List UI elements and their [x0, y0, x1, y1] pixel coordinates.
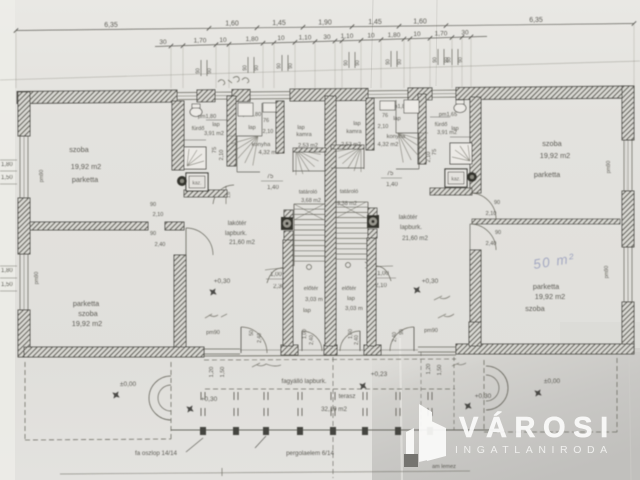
svg-text:lap: lap: [393, 116, 400, 122]
svg-text:pm90: pm90: [39, 170, 45, 183]
svg-text:19,92 m2: 19,92 m2: [540, 151, 570, 160]
svg-text:3,68 m2: 3,68 m2: [301, 198, 321, 204]
svg-text:szoba: szoba: [78, 309, 98, 318]
svg-text:75: 75: [267, 174, 274, 180]
svg-text:pm90: pm90: [604, 266, 610, 279]
svg-text:1,10: 1,10: [299, 35, 312, 42]
svg-text:szoba: szoba: [542, 139, 562, 148]
svg-text:1,80: 1,80: [246, 36, 259, 43]
svg-text:1,80: 1,80: [1, 268, 13, 274]
svg-text:parketta: parketta: [534, 170, 561, 179]
svg-text:szoba: szoba: [69, 145, 89, 154]
svg-text:kamra: kamra: [346, 129, 362, 135]
svg-text:fagyálló lapburk.: fagyálló lapburk.: [281, 378, 326, 385]
svg-text:2,10: 2,10: [375, 283, 387, 289]
svg-text:1,10: 1,10: [341, 33, 354, 40]
svg-text:parketta: parketta: [73, 299, 100, 308]
svg-text:1,70: 1,70: [435, 30, 448, 37]
svg-text:fürdő: fürdő: [192, 126, 205, 132]
svg-text:szoba: szoba: [525, 304, 545, 313]
svg-text:90: 90: [447, 57, 453, 63]
svg-text:tatároló: tatároló: [340, 189, 358, 195]
svg-text:lap: lap: [248, 125, 255, 131]
svg-text:lakótér: lakótér: [399, 214, 418, 221]
svg-text:3,91 m2: 3,91 m2: [204, 131, 224, 137]
svg-text:1,90: 1,90: [318, 20, 332, 27]
svg-text:10: 10: [413, 31, 421, 38]
svg-text:90: 90: [288, 63, 294, 69]
svg-text:1,50: 1,50: [1, 282, 13, 288]
svg-text:2,40: 2,40: [354, 335, 360, 345]
svg-text:90: 90: [254, 65, 260, 71]
svg-text:INGATLANIRODA: INGATLANIRODA: [455, 444, 613, 456]
svg-text:lap: lap: [353, 121, 360, 127]
svg-text:2,10: 2,10: [486, 211, 497, 217]
svg-text:parketta: parketta: [72, 175, 99, 184]
svg-text:+0,30: +0,30: [201, 396, 218, 403]
svg-text:75: 75: [212, 147, 218, 153]
svg-text:32,19 m2: 32,19 m2: [321, 406, 347, 413]
svg-text:90: 90: [494, 200, 500, 206]
svg-text:pm90: pm90: [206, 330, 220, 336]
svg-text:4,32 m2: 4,32 m2: [378, 142, 399, 148]
svg-text:90: 90: [433, 57, 439, 63]
svg-text:1,45: 1,45: [368, 19, 382, 26]
svg-text:fa oszlop 14/14: fa oszlop 14/14: [135, 450, 178, 457]
svg-text:21,60 m2: 21,60 m2: [402, 235, 428, 242]
svg-text:2,40: 2,40: [309, 335, 315, 345]
svg-text:terasz: terasz: [339, 393, 356, 400]
svg-text:+0,30: +0,30: [422, 278, 439, 285]
svg-text:előtér: előtér: [304, 286, 319, 292]
svg-text:90: 90: [277, 63, 283, 69]
svg-text:+0,30: +0,30: [475, 393, 492, 400]
svg-text:2,40: 2,40: [155, 242, 166, 248]
svg-text:előtér: előtér: [342, 286, 357, 292]
svg-text:lapburk.: lapburk.: [400, 224, 422, 231]
svg-text:1,40: 1,40: [386, 182, 398, 188]
svg-text:pergolaelem 6/14: pergolaelem 6/14: [286, 450, 334, 457]
svg-text:+0,30: +0,30: [214, 278, 231, 285]
svg-text:30: 30: [159, 39, 167, 46]
svg-text:1,00: 1,00: [270, 272, 282, 278]
svg-text:1,00: 1,00: [377, 271, 389, 277]
svg-text:1,50: 1,50: [1, 175, 13, 181]
svg-text:lap: lap: [297, 125, 304, 131]
svg-text:10: 10: [367, 33, 375, 40]
svg-text:1,80: 1,80: [388, 32, 401, 39]
svg-text:parketta: parketta: [533, 282, 560, 291]
svg-text:1,80: 1,80: [1, 162, 13, 168]
svg-text:lap: lap: [303, 308, 311, 314]
svg-text:1,20: 1,20: [209, 367, 215, 378]
svg-text:lap: lap: [212, 122, 219, 128]
svg-text:pm1,80: pm1,80: [198, 114, 216, 120]
svg-text:6,35: 6,35: [529, 17, 543, 24]
svg-text:75: 75: [387, 171, 394, 177]
svg-text:6,35: 6,35: [104, 22, 118, 29]
svg-text:+0,23: +0,23: [371, 371, 388, 378]
svg-text:2,53 m2: 2,53 m2: [341, 142, 361, 148]
svg-text:2,40: 2,40: [257, 333, 263, 343]
svg-text:kamra: kamra: [296, 132, 312, 138]
svg-text:1,70: 1,70: [194, 38, 207, 45]
svg-text:VÁROSI: VÁROSI: [459, 410, 616, 444]
svg-text:2,10: 2,10: [219, 150, 225, 161]
svg-text:1,60: 1,60: [413, 18, 427, 25]
svg-text:±0,00: ±0,00: [120, 381, 137, 388]
svg-text:am lemez: am lemez: [432, 464, 456, 470]
svg-text:1,50: 1,50: [220, 367, 226, 378]
svg-text:90: 90: [344, 60, 350, 66]
svg-text:30: 30: [461, 30, 469, 37]
svg-text:90: 90: [150, 231, 156, 237]
svg-text:2,10: 2,10: [263, 129, 274, 135]
svg-text:21,60 m2: 21,60 m2: [229, 239, 255, 246]
svg-text:76: 76: [263, 118, 269, 124]
svg-text:1,00: 1,00: [302, 329, 308, 339]
svg-text:3,03 m: 3,03 m: [305, 297, 323, 303]
svg-text:2,10: 2,10: [378, 124, 389, 130]
svg-text:tatároló: tatároló: [299, 190, 317, 196]
svg-text:2,53 m2: 2,53 m2: [298, 143, 318, 149]
svg-text:±0,00: ±0,00: [544, 378, 561, 385]
svg-text:2,10: 2,10: [153, 212, 164, 218]
svg-text:fürdő: fürdő: [435, 122, 448, 128]
svg-text:2,40: 2,40: [392, 332, 398, 342]
svg-text:19,92 m2: 19,92 m2: [72, 319, 102, 328]
svg-text:1,50: 1,50: [437, 365, 443, 376]
svg-text:pm90: pm90: [34, 272, 40, 285]
svg-text:2,10: 2,10: [426, 152, 432, 163]
svg-text:90: 90: [386, 59, 392, 65]
svg-text:90: 90: [243, 65, 249, 71]
svg-text:1,60: 1,60: [225, 21, 239, 28]
svg-text:10: 10: [277, 35, 285, 42]
svg-text:19,92 m2: 19,92 m2: [535, 292, 565, 301]
svg-text:lakótér: lakótér: [228, 220, 247, 227]
svg-text:90: 90: [196, 68, 202, 74]
svg-text:90: 90: [458, 57, 464, 63]
svg-text:76: 76: [382, 113, 388, 119]
svg-text:1,20: 1,20: [426, 364, 432, 375]
svg-text:1,45: 1,45: [272, 20, 286, 27]
svg-text:1,40: 1,40: [267, 185, 279, 191]
svg-text:90: 90: [399, 329, 405, 335]
svg-text:pm90: pm90: [424, 328, 438, 334]
svg-text:3,03 m: 3,03 m: [345, 306, 363, 312]
svg-text:lapburk.: lapburk.: [225, 230, 247, 237]
svg-text:30: 30: [323, 34, 331, 41]
svg-text:75: 75: [432, 149, 438, 155]
svg-text:10: 10: [219, 37, 227, 44]
svg-text:kaz.: kaz.: [451, 177, 460, 183]
svg-text:50: 50: [249, 330, 255, 336]
svg-text:lap: lap: [347, 296, 355, 302]
svg-text:kaz.: kaz.: [192, 181, 201, 187]
svg-text:90: 90: [495, 230, 501, 236]
svg-text:19,92 m2: 19,92 m2: [71, 162, 101, 171]
svg-text:3,91 m2: 3,91 m2: [437, 130, 457, 136]
svg-text:90: 90: [355, 60, 361, 66]
svg-text:pm90: pm90: [606, 161, 612, 174]
svg-text:90: 90: [150, 202, 156, 208]
svg-text:90: 90: [397, 59, 403, 65]
svg-text:90: 90: [207, 68, 213, 74]
